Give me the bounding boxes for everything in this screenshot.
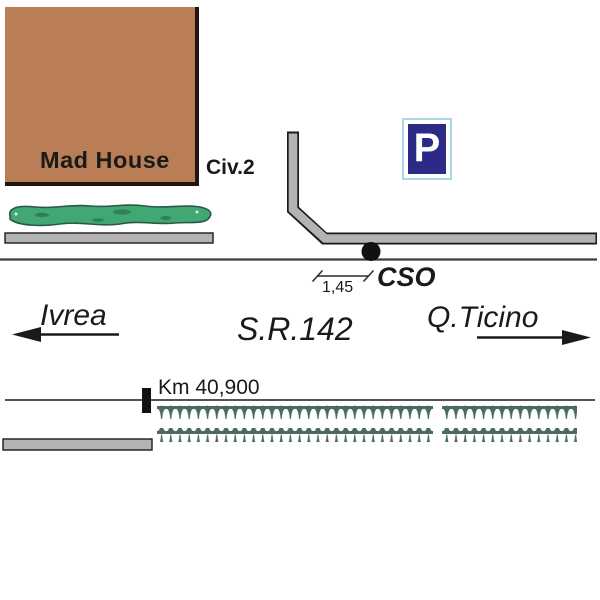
parking-sign: P (402, 118, 452, 180)
road-edge-lower-left (3, 439, 152, 450)
parking-sign-panel: P (408, 124, 446, 174)
km-post-marker (142, 388, 151, 413)
direction-right-label: Q.Ticino (427, 301, 538, 335)
building-label: Mad House (40, 147, 175, 174)
barrier-row-lower (157, 428, 577, 442)
cso-label: CSO (377, 262, 436, 293)
hedge-strip (10, 205, 211, 225)
km-marker-label: Km 40,900 (158, 376, 260, 400)
road-edge-upper-left (5, 233, 213, 243)
dimension-value-label: 1,45 (322, 279, 353, 297)
road-site-plan: Mad House Civ.2 P CSO 1,45 Ivrea S.R.142… (0, 0, 600, 600)
barrier-row-upper (157, 405, 577, 419)
cso-point-marker (362, 242, 381, 261)
direction-left-label: Ivrea (40, 299, 107, 333)
parking-sign-letter: P (414, 128, 441, 168)
civic-number-label: Civ.2 (206, 156, 255, 180)
road-name-label: S.R.142 (237, 311, 353, 348)
